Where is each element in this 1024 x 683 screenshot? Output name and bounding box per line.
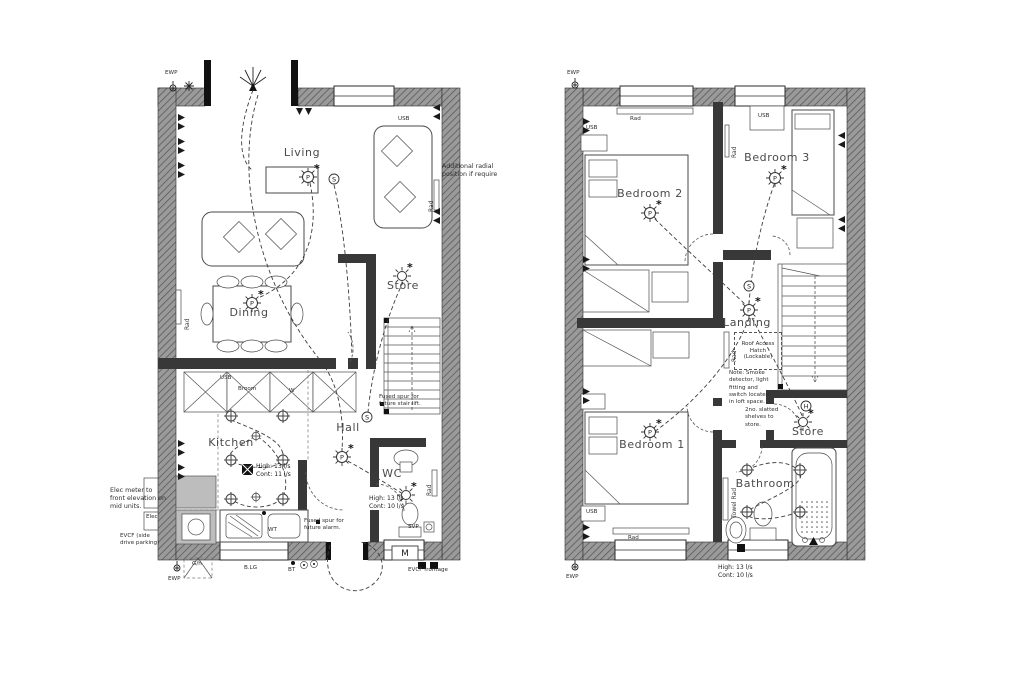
note-fused-spur-stair: Fused spur for future stair lift. (379, 394, 435, 409)
svg-text:*: * (314, 162, 320, 175)
label-rad-bedroom2: Rad (630, 116, 641, 122)
svg-text:P: P (306, 173, 310, 181)
label-usb-bedroom2: USB (586, 125, 597, 131)
roof-access-hatch-box: Roof Access Hatch (Lockable) (734, 332, 782, 370)
label-ewp-ff-top: EWP (567, 70, 579, 76)
svg-text:S: S (332, 175, 336, 183)
room-label-bedroom3: Bedroom 3 (744, 151, 810, 164)
label-usb-bedroom3: USB (758, 113, 769, 119)
svg-text:*: * (407, 261, 413, 274)
room-label-store-ff: Store (792, 425, 824, 438)
label-usb-living: USB (398, 116, 409, 122)
vent-rates-kitchen: High: 13 l/s Cont: 11 l/s (256, 463, 291, 478)
label-towel-rad: Towel Rad (731, 488, 738, 518)
svg-text:*: * (755, 295, 761, 308)
switch-living: S (329, 174, 339, 184)
floorplan-drawing: P * S P * * P * S (0, 0, 1024, 683)
label-rad-bedroom3: Rad (731, 146, 738, 158)
label-rad-living: Rad (428, 200, 435, 212)
label-usb-bedroom1: USB (586, 509, 597, 515)
room-label-wc: WC (382, 467, 402, 480)
room-label-hall: Hall (336, 421, 360, 434)
label-ewp-ff-bottom: EWP (566, 574, 578, 580)
room-label-kitchen: Kitchen (208, 436, 254, 449)
vent-wc-high: High: 13 l/s (369, 495, 404, 503)
label-rad-wc: Rad (426, 484, 433, 496)
label-rad-dining: Rad (184, 318, 191, 330)
label-gh: G/h (192, 561, 202, 567)
label-rad-bedroom1: Rad (628, 535, 639, 541)
pendant-light-bedroom3: P * (766, 163, 787, 187)
label-wt: WT (268, 527, 277, 533)
label-rad-landing: Rad (731, 350, 738, 362)
vent-ff-high: High: 13 l/s (718, 564, 753, 572)
label-elec: Elec (146, 514, 158, 520)
room-label-store-gf: Store (387, 279, 419, 292)
vent-wc-cont: Cont: 10 l/s (369, 503, 404, 511)
switch-landing: S (744, 281, 754, 291)
bathroom-fixtures (723, 448, 836, 552)
svg-text:*: * (411, 480, 417, 493)
note-fused-spur-alarm: Fused spur for future alarm. (304, 518, 352, 533)
ewp-icon-gf-bottom (174, 561, 180, 571)
vent-rates-ff: High: 13 l/s Cont: 10 l/s (718, 564, 753, 579)
svg-text:P: P (340, 453, 344, 461)
svg-text:*: * (781, 163, 787, 176)
room-label-bathroom: Bathroom (736, 477, 795, 490)
label-blg: B.LG (244, 565, 257, 571)
svg-text:*: * (808, 407, 814, 420)
svg-text:*: * (258, 288, 264, 301)
note-evcf-frontage: EVCF frontage (406, 567, 450, 574)
ewp-icon-ff-bottom (572, 560, 578, 570)
svg-text:P: P (747, 306, 751, 314)
label-w-cupboard: W (289, 388, 295, 394)
meter-m-label: M (401, 549, 409, 559)
svg-text:P: P (648, 209, 652, 217)
label-bt: BT (288, 567, 295, 573)
bedroom1-furniture (581, 330, 689, 534)
note-elec-meter: Elec meter to front elevation on mid uni… (110, 487, 166, 512)
room-label-dining: Dining (229, 306, 268, 319)
note-shelves: 2no. slatted shelves to store. (745, 407, 783, 429)
room-label-bedroom2: Bedroom 2 (617, 187, 683, 200)
note-evcf-side: EVCF (side drive parking) (120, 533, 164, 548)
label-ewp-gf-bottom: EWP (168, 576, 180, 582)
label-usb-kitchen: USB (220, 375, 231, 381)
front-door-light (240, 67, 266, 91)
floorplan-canvas: P * S P * * P * S (0, 0, 1024, 683)
switch-hall: S (362, 412, 372, 422)
vent-ff-cont: Cont: 10 l/s (718, 572, 753, 580)
living-furniture (202, 126, 439, 266)
svg-text:*: * (656, 417, 662, 430)
first-floor-plan: P * P * P * P * S H (565, 78, 865, 570)
landing-fittings (724, 332, 729, 368)
first-floor-stairs (778, 264, 847, 390)
note-loft: Note: Smoke detector, light fitting and … (729, 370, 771, 406)
svg-text:*: * (348, 442, 354, 455)
svg-text:P: P (648, 428, 652, 436)
vent-kitchen-cont: Cont: 11 l/s (256, 471, 291, 479)
room-label-living: Living (284, 146, 320, 159)
room-label-landing: Landing (723, 316, 771, 329)
bedroom2-furniture (581, 108, 693, 312)
vent-kitchen-high: High: 13 l/s (256, 463, 291, 471)
vent-rates-wc: High: 13 l/s Cont: 10 l/s (369, 495, 404, 510)
svg-text:P: P (773, 174, 777, 182)
svg-text:S: S (747, 282, 751, 290)
ewp-icon-ff-top (572, 78, 578, 88)
svg-text:S: S (365, 413, 369, 421)
ground-floor-plan: P * S P * * P * S (144, 60, 460, 591)
label-broom: Broom (238, 386, 256, 392)
label-svp-gf: SVP (408, 524, 419, 530)
room-label-bedroom1: Bedroom 1 (619, 438, 685, 451)
label-ewp-gf-top: EWP (165, 70, 177, 76)
note-additional-radial: Additional radial position if require (442, 163, 512, 179)
